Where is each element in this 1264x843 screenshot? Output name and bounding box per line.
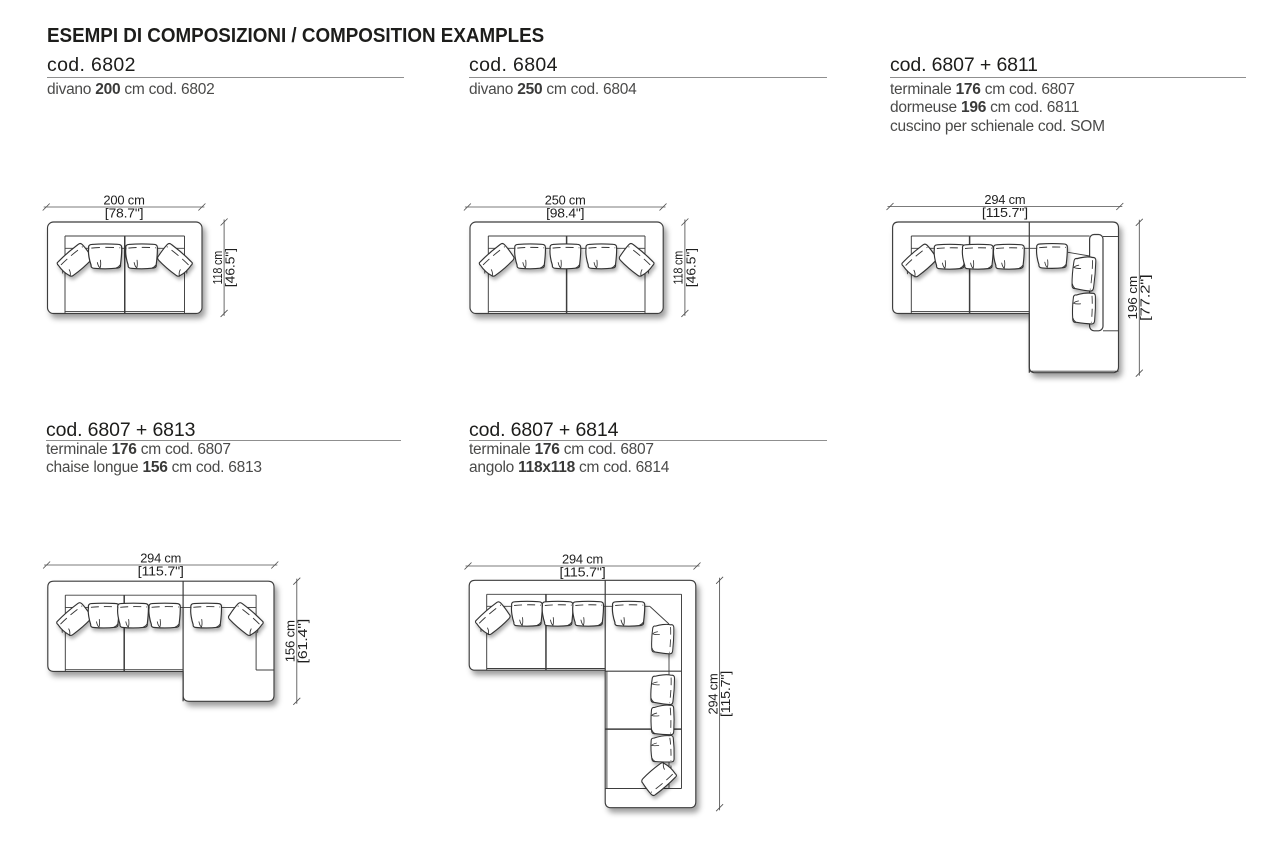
svg-text:[98.4"]: [98.4"] xyxy=(546,205,584,220)
svg-text:[115.7"]: [115.7"] xyxy=(138,563,184,578)
svg-text:[61.4"]: [61.4"] xyxy=(295,619,310,664)
svg-text:[78.7"]: [78.7"] xyxy=(105,205,144,220)
svg-text:[115.7"]: [115.7"] xyxy=(718,671,733,717)
svg-text:[46.5"]: [46.5"] xyxy=(683,248,698,287)
svg-text:[115.7"]: [115.7"] xyxy=(982,205,1028,220)
svg-text:[115.7"]: [115.7"] xyxy=(560,564,606,579)
svg-text:[46.5"]: [46.5"] xyxy=(223,248,238,287)
svg-text:[77.2"]: [77.2"] xyxy=(1138,275,1153,322)
